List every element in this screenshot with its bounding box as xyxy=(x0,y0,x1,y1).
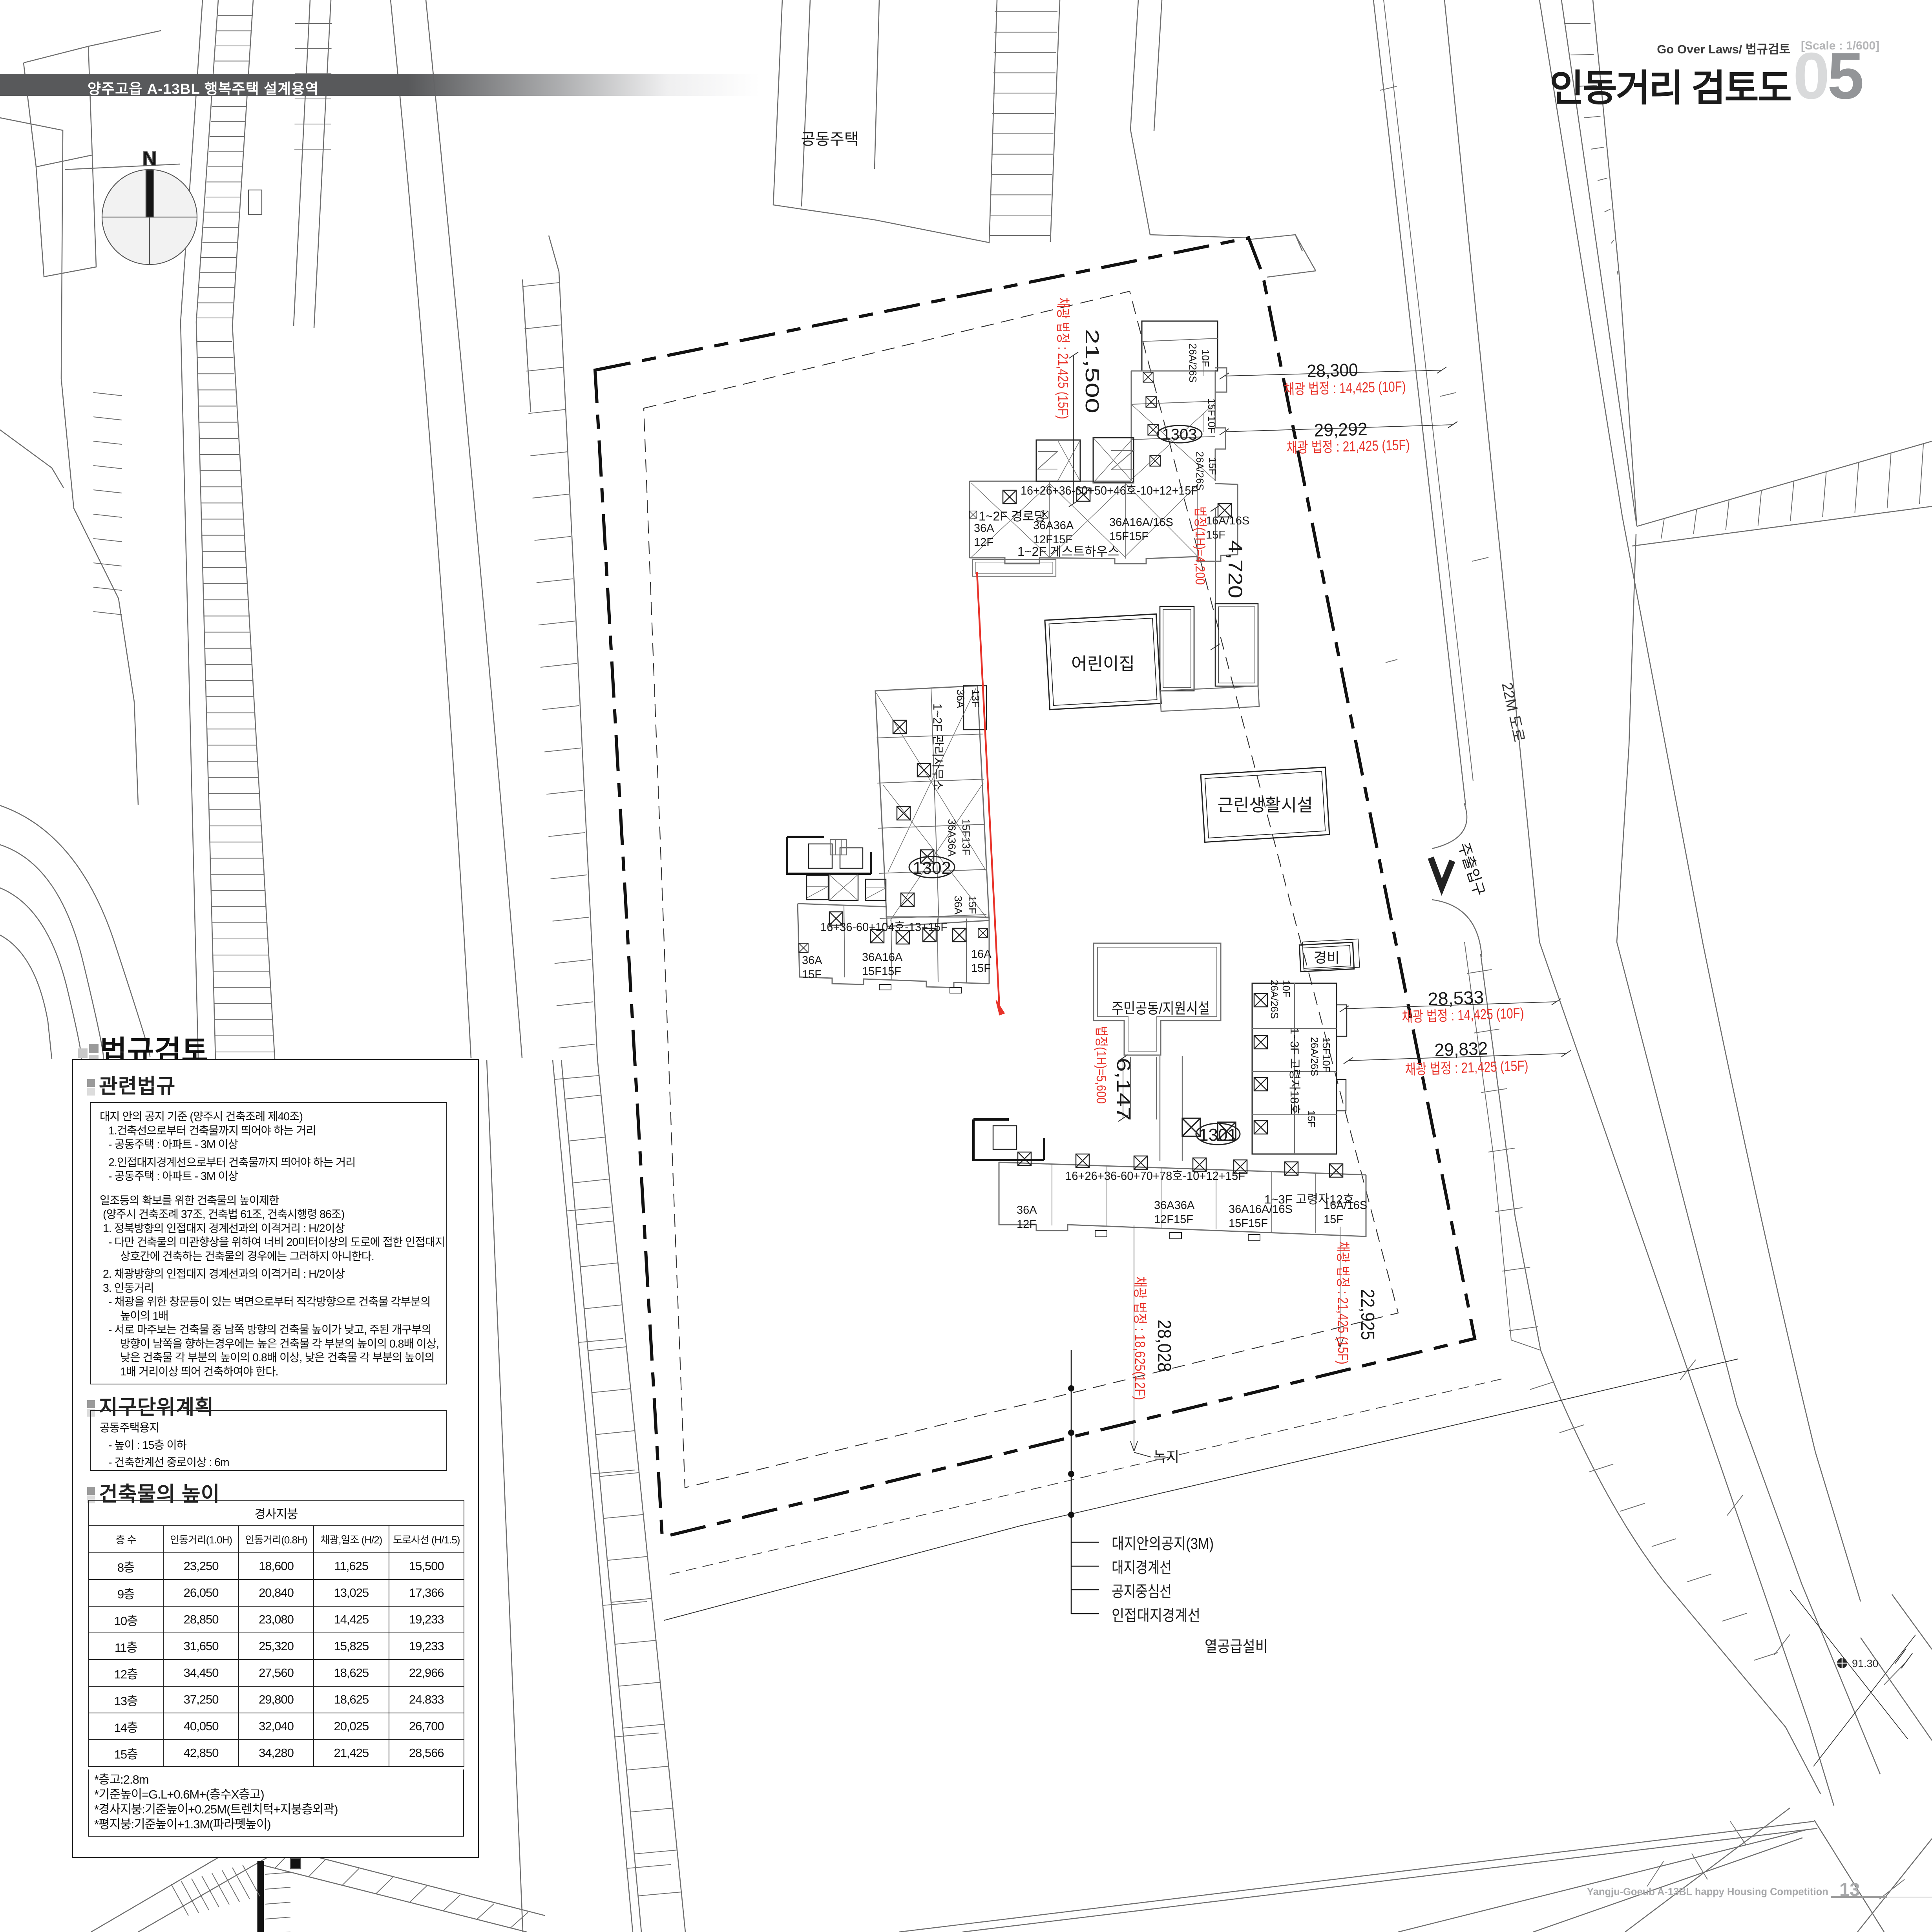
svg-text:열공급설비: 열공급설비 xyxy=(1205,1638,1268,1655)
svg-text:4,720: 4,720 xyxy=(1224,540,1246,598)
svg-text:채광 법정 : 21,425 (15F): 채광 법정 : 21,425 (15F) xyxy=(1055,298,1071,419)
svg-text:15F: 15F xyxy=(1324,1213,1343,1226)
svg-text:29,832: 29,832 xyxy=(1434,1038,1488,1060)
svg-text:채광 법정 : 21,425 (15F): 채광 법정 : 21,425 (15F) xyxy=(1405,1057,1528,1078)
svg-text:1~2F 관리사무소: 1~2F 관리사무소 xyxy=(931,703,944,791)
svg-text:36A16A: 36A16A xyxy=(862,951,903,964)
svg-text:15F10F: 15F10F xyxy=(1320,1037,1332,1072)
svg-text:1303: 1303 xyxy=(1162,426,1197,443)
svg-text:공동주택: 공동주택 xyxy=(801,131,858,148)
svg-text:36A: 36A xyxy=(974,522,994,535)
svg-text:1302: 1302 xyxy=(913,858,951,878)
svg-text:16+26+36-60+50+46호-10+12+15F: 16+26+36-60+50+46호-10+12+15F xyxy=(1021,484,1198,497)
svg-text:15F: 15F xyxy=(1207,457,1218,475)
svg-text:26A/26S: 26A/26S xyxy=(1309,1037,1320,1076)
svg-text:16A/16S: 16A/16S xyxy=(1324,1199,1367,1212)
svg-text:36A16A/16S: 36A16A/16S xyxy=(1229,1203,1293,1216)
svg-text:15F10F: 15F10F xyxy=(1206,398,1218,434)
svg-text:15F15F: 15F15F xyxy=(862,965,901,978)
svg-text:1~3F 고령자18호: 1~3F 고령자18호 xyxy=(1288,1028,1301,1114)
svg-text:15F13F: 15F13F xyxy=(960,819,972,855)
svg-text:채광 법정 : 18,625(12F): 채광 법정 : 18,625(12F) xyxy=(1132,1276,1148,1400)
svg-text:16A/16S: 16A/16S xyxy=(1206,515,1249,527)
svg-text:36A: 36A xyxy=(952,896,964,915)
svg-text:법정(1H)=4,200: 법정(1H)=4,200 xyxy=(1192,506,1207,585)
svg-text:15F: 15F xyxy=(1306,1110,1317,1128)
svg-text:녹지: 녹지 xyxy=(1153,1449,1179,1465)
svg-text:12F: 12F xyxy=(974,536,993,549)
svg-text:15F: 15F xyxy=(1206,529,1225,541)
svg-text:15F15F: 15F15F xyxy=(1109,530,1149,543)
svg-text:36A16A/16S: 36A16A/16S xyxy=(1109,516,1173,529)
svg-text:채광 법정 : 21,425 (15F): 채광 법정 : 21,425 (15F) xyxy=(1335,1241,1351,1364)
svg-text:36A36A: 36A36A xyxy=(1154,1199,1195,1212)
svg-text:36A: 36A xyxy=(802,954,822,967)
svg-text:15F: 15F xyxy=(802,968,822,981)
svg-text:15F15F: 15F15F xyxy=(1229,1217,1268,1230)
svg-text:채광 법정 : 14,425 (10F): 채광 법정 : 14,425 (10F) xyxy=(1402,1005,1524,1025)
svg-text:15F: 15F xyxy=(966,896,978,914)
svg-text:28,533: 28,533 xyxy=(1428,987,1485,1009)
svg-text:10F: 10F xyxy=(1280,980,1292,997)
svg-text:29,292: 29,292 xyxy=(1314,418,1368,440)
svg-text:공지중심선: 공지중심선 xyxy=(1112,1583,1172,1600)
svg-text:12F: 12F xyxy=(1017,1218,1036,1231)
svg-text:22,925: 22,925 xyxy=(1357,1289,1378,1340)
svg-text:어린이집: 어린이집 xyxy=(1071,654,1135,674)
svg-text:28,028: 28,028 xyxy=(1154,1320,1174,1372)
svg-text:16+26+36-60+70+78호-10+12+15F: 16+26+36-60+70+78호-10+12+15F xyxy=(1065,1169,1245,1183)
svg-text:36A: 36A xyxy=(955,689,966,708)
svg-text:16A: 16A xyxy=(971,948,992,961)
svg-text:채광 법정 : 21,425 (15F): 채광 법정 : 21,425 (15F) xyxy=(1286,437,1410,456)
svg-text:대지경계선: 대지경계선 xyxy=(1112,1559,1172,1576)
svg-text:대지안의공지(3M): 대지안의공지(3M) xyxy=(1112,1535,1214,1552)
svg-text:28,300: 28,300 xyxy=(1307,360,1358,381)
svg-text:12F15F: 12F15F xyxy=(1033,533,1072,546)
svg-text:주민공동/지원시설: 주민공동/지원시설 xyxy=(1112,1001,1210,1017)
svg-text:16+36-60+104호-13+15F: 16+36-60+104호-13+15F xyxy=(820,920,948,934)
svg-text:6,147: 6,147 xyxy=(1113,1058,1134,1121)
svg-text:법정(1H)=5,600: 법정(1H)=5,600 xyxy=(1094,1026,1108,1104)
svg-text:인접대지경계선: 인접대지경계선 xyxy=(1112,1607,1200,1624)
svg-text:1301: 1301 xyxy=(1199,1125,1237,1145)
svg-text:10F: 10F xyxy=(1200,349,1211,367)
svg-text:경비: 경비 xyxy=(1314,950,1340,966)
svg-text:26A/26S: 26A/26S xyxy=(1187,343,1199,383)
svg-text:26A/26S: 26A/26S xyxy=(1269,980,1280,1019)
svg-text:91.30: 91.30 xyxy=(1852,1658,1879,1669)
svg-text:26A/26S: 26A/26S xyxy=(1194,451,1206,491)
svg-text:36A36A: 36A36A xyxy=(946,819,958,856)
svg-text:채광 법정 : 14,425 (10F): 채광 법정 : 14,425 (10F) xyxy=(1284,378,1406,398)
svg-text:15F: 15F xyxy=(971,962,991,975)
svg-text:N: N xyxy=(142,148,157,170)
svg-text:36A: 36A xyxy=(1017,1204,1037,1216)
svg-text:1~2F 게스트하우스: 1~2F 게스트하우스 xyxy=(1017,544,1119,559)
svg-text:12F15F: 12F15F xyxy=(1154,1213,1193,1226)
svg-text:근린생활시설: 근린생활시설 xyxy=(1218,796,1313,815)
svg-text:주출입구: 주출입구 xyxy=(1455,841,1487,898)
svg-text:13F: 13F xyxy=(970,689,981,708)
svg-text:22M 도로: 22M 도로 xyxy=(1498,681,1527,744)
svg-text:36A36A: 36A36A xyxy=(1033,519,1074,532)
svg-text:21,500: 21,500 xyxy=(1081,329,1102,413)
